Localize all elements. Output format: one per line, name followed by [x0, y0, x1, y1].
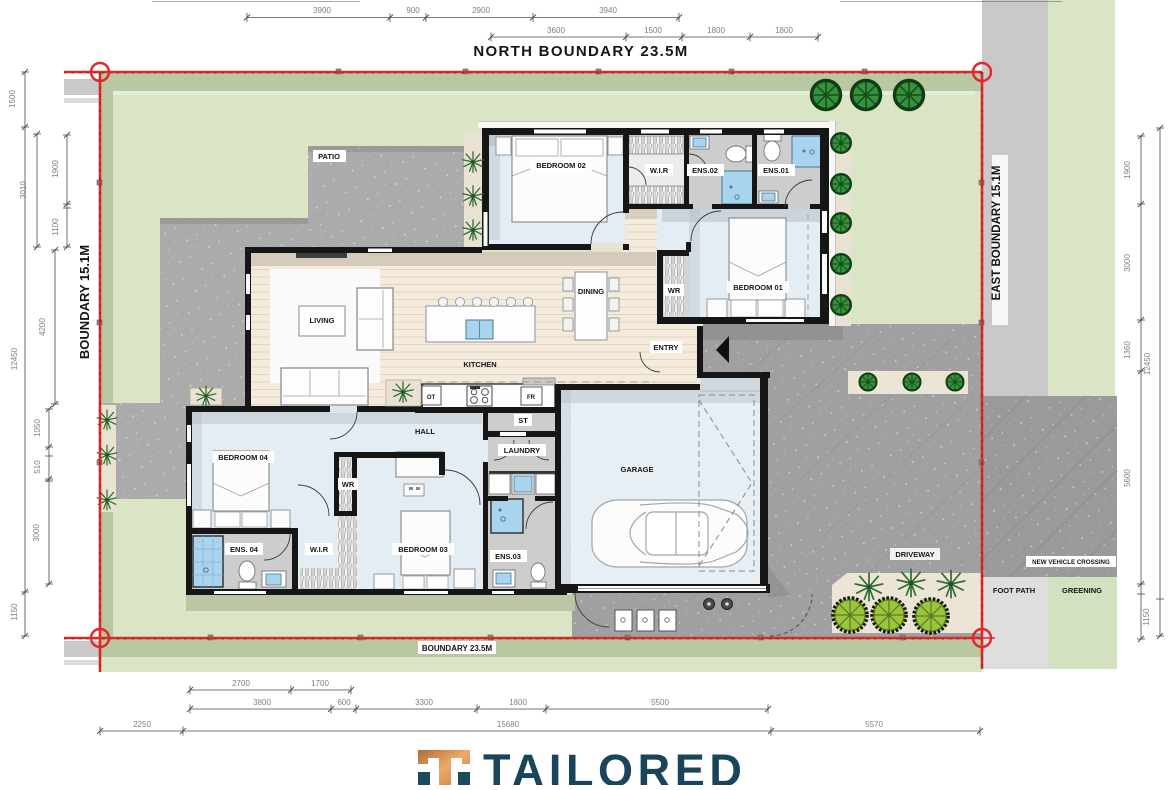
- svg-text:2250: 2250: [133, 720, 151, 729]
- svg-text:3940: 3940: [599, 6, 617, 15]
- svg-text:BEDROOM 03: BEDROOM 03: [398, 545, 448, 554]
- svg-text:3000: 3000: [1123, 254, 1132, 272]
- svg-text:2700: 2700: [232, 679, 250, 688]
- svg-text:5600: 5600: [1123, 469, 1132, 487]
- svg-text:BOUNDARY 15.1M: BOUNDARY 15.1M: [77, 245, 92, 359]
- svg-text:GARAGE: GARAGE: [621, 465, 654, 474]
- svg-text:1800: 1800: [775, 26, 793, 35]
- svg-text:W.I.R: W.I.R: [310, 545, 329, 554]
- svg-text:3000: 3000: [32, 524, 41, 542]
- svg-text:3600: 3600: [547, 26, 565, 35]
- svg-text:DINING: DINING: [578, 287, 604, 296]
- svg-text:BEDROOM 04: BEDROOM 04: [218, 453, 268, 462]
- svg-text:510: 510: [33, 460, 42, 474]
- svg-text:ENS.02: ENS.02: [692, 166, 718, 175]
- svg-text:PATIO: PATIO: [318, 152, 340, 161]
- svg-text:NORTH BOUNDARY 23.5M: NORTH BOUNDARY 23.5M: [473, 43, 688, 60]
- svg-text:TAILORED: TAILORED: [483, 745, 746, 785]
- svg-text:BEDROOM 01: BEDROOM 01: [733, 283, 783, 292]
- svg-text:1100: 1100: [51, 218, 60, 236]
- svg-text:BEDROOM 02: BEDROOM 02: [536, 161, 586, 170]
- svg-text:3800: 3800: [253, 698, 271, 707]
- svg-text:ENTRY: ENTRY: [653, 343, 678, 352]
- svg-text:1050: 1050: [33, 419, 42, 437]
- svg-text:HALL: HALL: [415, 427, 435, 436]
- svg-text:1360: 1360: [1123, 341, 1132, 359]
- svg-text:3300: 3300: [415, 698, 433, 707]
- svg-text:OT: OT: [427, 395, 436, 401]
- svg-text:1500: 1500: [644, 26, 662, 35]
- svg-text:2900: 2900: [472, 6, 490, 15]
- svg-text:1800: 1800: [707, 26, 725, 35]
- svg-text:1900: 1900: [51, 160, 60, 178]
- svg-text:1900: 1900: [1123, 161, 1132, 179]
- svg-text:LAUNDRY: LAUNDRY: [504, 446, 540, 455]
- svg-text:DRIVEWAY: DRIVEWAY: [895, 550, 934, 559]
- svg-text:FR: FR: [527, 395, 536, 401]
- svg-text:WR: WR: [342, 480, 355, 489]
- svg-text:ENS.03: ENS.03: [495, 552, 521, 561]
- svg-text:1150: 1150: [1142, 608, 1151, 626]
- svg-text:BOUNDARY 23.5M: BOUNDARY 23.5M: [422, 644, 493, 653]
- svg-text:1800: 1800: [509, 698, 527, 707]
- svg-text:ST: ST: [518, 416, 528, 425]
- svg-text:12450: 12450: [10, 347, 19, 370]
- svg-text:1500: 1500: [8, 90, 17, 108]
- svg-text:GREENING: GREENING: [1062, 586, 1102, 595]
- svg-text:3900: 3900: [313, 6, 331, 15]
- svg-text:ENS.01: ENS.01: [763, 166, 789, 175]
- svg-text:NEW VEHICLE CROSSING: NEW VEHICLE CROSSING: [1032, 559, 1110, 566]
- svg-text:FOOT PATH: FOOT PATH: [993, 586, 1035, 595]
- svg-text:600: 600: [337, 698, 351, 707]
- svg-text:5570: 5570: [865, 720, 883, 729]
- svg-text:KITCHEN: KITCHEN: [463, 360, 496, 369]
- svg-text:1700: 1700: [311, 679, 329, 688]
- svg-text:15680: 15680: [497, 720, 520, 729]
- svg-text:1150: 1150: [10, 603, 19, 621]
- svg-text:WR: WR: [668, 286, 681, 295]
- svg-text:4200: 4200: [38, 318, 47, 336]
- svg-text:5500: 5500: [651, 698, 669, 707]
- svg-text:3010: 3010: [19, 181, 28, 199]
- svg-text:900: 900: [406, 6, 420, 15]
- svg-text:LIVING: LIVING: [309, 316, 334, 325]
- svg-text:W.I.R: W.I.R: [650, 166, 669, 175]
- svg-text:EAST BOUNDARY 15.1M: EAST BOUNDARY 15.1M: [991, 166, 1003, 301]
- svg-text:12450: 12450: [1143, 352, 1152, 375]
- svg-text:ENS. 04: ENS. 04: [230, 545, 259, 554]
